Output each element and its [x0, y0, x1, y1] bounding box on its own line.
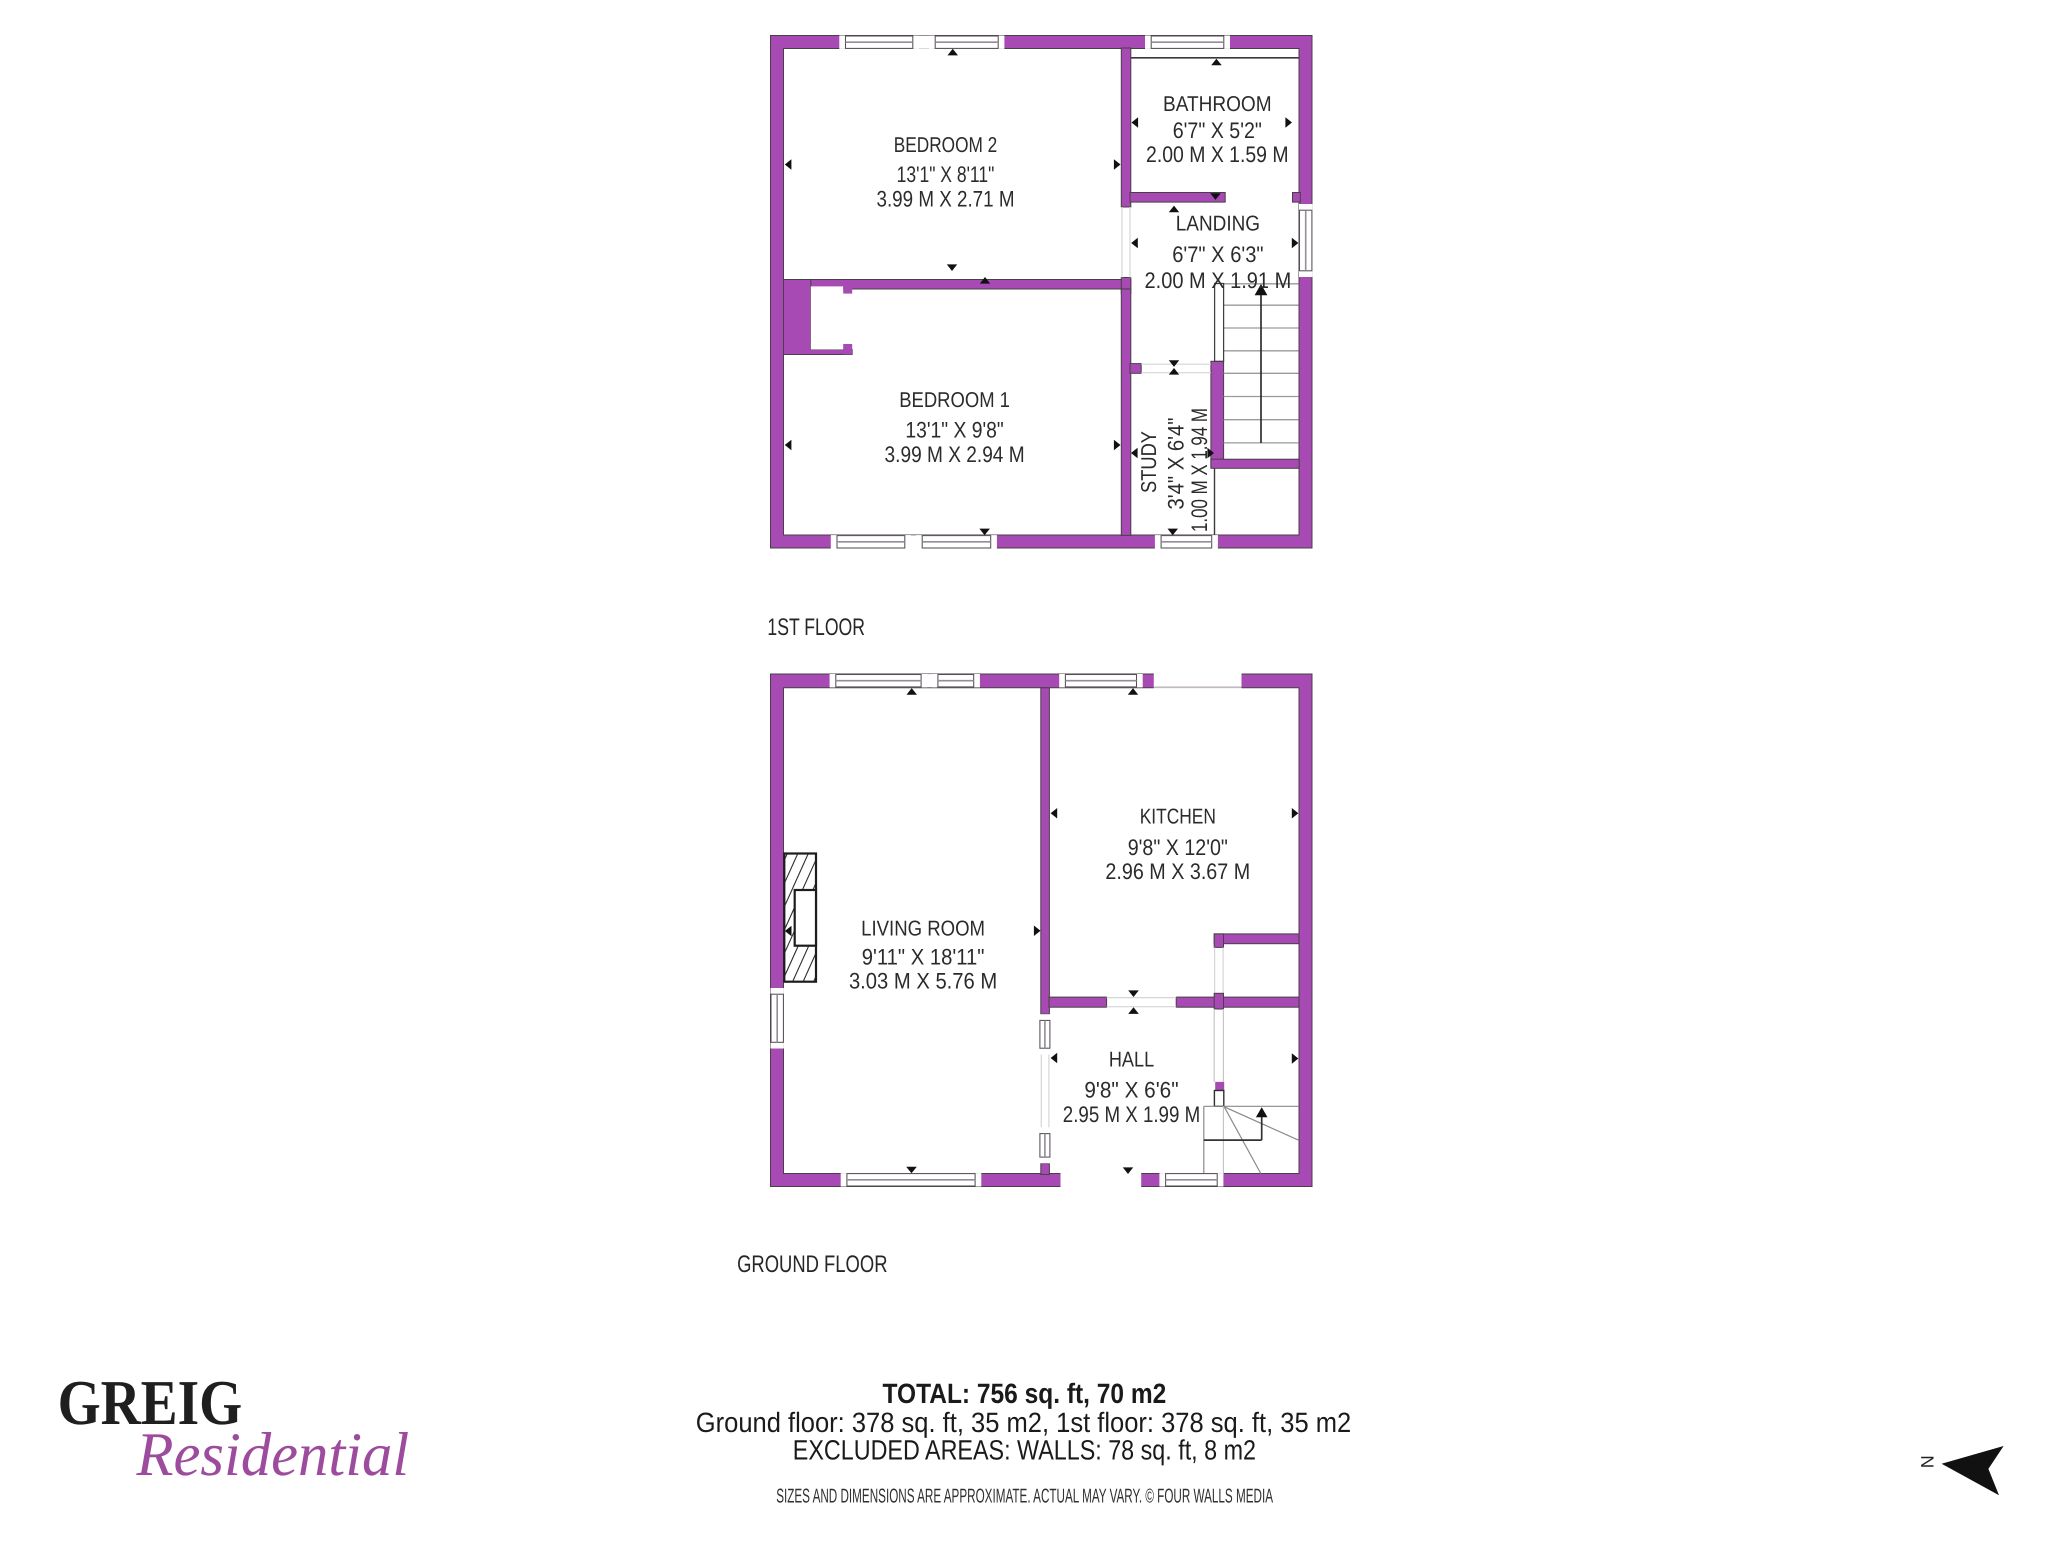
- svg-text:2.00 M X 1.91 M: 2.00 M X 1.91 M: [1145, 268, 1292, 293]
- svg-text:KITCHEN: KITCHEN: [1140, 805, 1216, 829]
- svg-text:3.99 M X 2.94 M: 3.99 M X 2.94 M: [885, 442, 1025, 467]
- svg-text:BEDROOM 1: BEDROOM 1: [899, 388, 1010, 412]
- svg-text:LANDING: LANDING: [1176, 212, 1260, 236]
- svg-text:SIZES AND DIMENSIONS ARE APPRO: SIZES AND DIMENSIONS ARE APPROXIMATE. AC…: [776, 1485, 1273, 1507]
- svg-text:3.03 M X 5.76 M: 3.03 M X 5.76 M: [849, 969, 997, 994]
- svg-text:HALL: HALL: [1109, 1048, 1154, 1072]
- svg-text:3'4" X 6'4": 3'4" X 6'4": [1164, 417, 1189, 509]
- svg-text:9'8" X 6'6": 9'8" X 6'6": [1084, 1077, 1178, 1102]
- svg-text:9'8" X 12'0": 9'8" X 12'0": [1128, 835, 1228, 860]
- svg-text:13'1" X 9'8": 13'1" X 9'8": [905, 417, 1003, 442]
- svg-text:EXCLUDED AREAS: WALLS: 78 sq.: EXCLUDED AREAS: WALLS: 78 sq. ft, 8 m2: [793, 1435, 1256, 1466]
- svg-text:2.95 M X 1.99 M: 2.95 M X 1.99 M: [1063, 1102, 1200, 1127]
- svg-text:2.00 M X 1.59 M: 2.00 M X 1.59 M: [1146, 142, 1289, 167]
- svg-text:GROUND FLOOR: GROUND FLOOR: [737, 1251, 887, 1278]
- svg-text:3.99 M X 2.71 M: 3.99 M X 2.71 M: [877, 187, 1015, 212]
- svg-text:6'7" X 6'3": 6'7" X 6'3": [1172, 242, 1263, 267]
- svg-text:9'11" X 18'11": 9'11" X 18'11": [862, 944, 985, 969]
- svg-text:1.00 M X 1.94 M: 1.00 M X 1.94 M: [1187, 408, 1212, 532]
- svg-text:BATHROOM: BATHROOM: [1163, 92, 1272, 116]
- svg-text:1ST FLOOR: 1ST FLOOR: [767, 614, 865, 641]
- svg-text:BEDROOM 2: BEDROOM 2: [894, 133, 998, 157]
- svg-text:Ground floor: 378 sq. ft, 35 m: Ground floor: 378 sq. ft, 35 m2, 1st flo…: [696, 1407, 1351, 1438]
- svg-text:STUDY: STUDY: [1137, 431, 1161, 493]
- svg-text:2.96 M X 3.67 M: 2.96 M X 3.67 M: [1105, 859, 1250, 884]
- svg-text:N: N: [1917, 1455, 1937, 1468]
- svg-text:Residential: Residential: [136, 1421, 410, 1489]
- svg-text:LIVING ROOM: LIVING ROOM: [861, 916, 985, 940]
- svg-text:13'1" X 8'11": 13'1" X 8'11": [897, 162, 995, 187]
- svg-text:6'7" X 5'2": 6'7" X 5'2": [1173, 118, 1262, 143]
- svg-text:TOTAL: 756 sq. ft, 70 m2: TOTAL: 756 sq. ft, 70 m2: [883, 1378, 1167, 1409]
